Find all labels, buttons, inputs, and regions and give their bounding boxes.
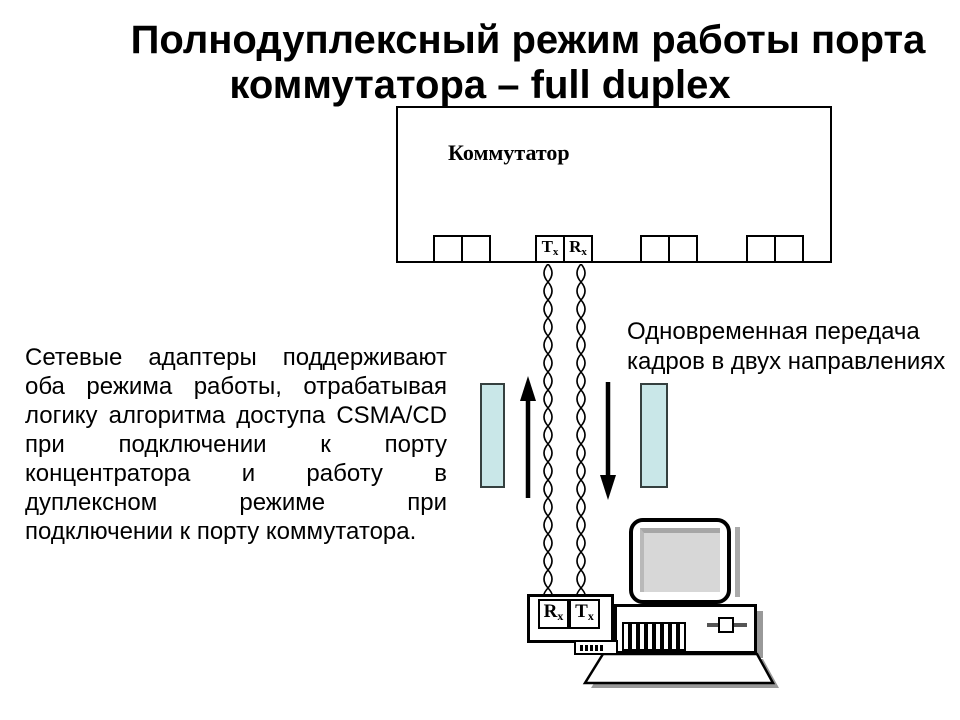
vent-slot xyxy=(662,622,670,651)
paragraph-line: Сетевые адаптеры поддерживают xyxy=(25,343,447,372)
monitor-screen xyxy=(640,528,720,592)
adapter-connector xyxy=(574,640,618,655)
slide-title: Полнодуплексный режим работы порта комму… xyxy=(95,18,905,108)
rx-adapter-label: Rx xyxy=(540,602,567,626)
paragraph-line: логику алгоритма доступа CSMA/CD xyxy=(25,401,447,430)
vent-slot xyxy=(638,622,646,651)
keyboard-icon xyxy=(578,650,788,694)
slide: Полнодуплексный режим работы порта комму… xyxy=(0,0,960,720)
paragraph-line: оба режима работы, отрабатывая xyxy=(25,372,447,401)
adapter-port-tx: Tx xyxy=(569,599,600,629)
monitor-icon xyxy=(629,518,731,604)
switch-box: Коммутатор Tx Rx xyxy=(396,106,832,263)
slide-title-line2: коммутатора – full duplex xyxy=(229,63,730,108)
keyboard-body xyxy=(585,654,773,683)
twisted-pair-cable-icon xyxy=(530,264,600,597)
caption-line: кадров в двух направлениях xyxy=(627,347,945,377)
switch-port-pair-4 xyxy=(746,235,804,263)
highlight-bar-left xyxy=(480,383,505,488)
switch-port xyxy=(746,235,776,263)
highlight-bar-right xyxy=(640,383,668,488)
system-unit-icon xyxy=(614,604,757,654)
switch-port-pair-tx-rx: Tx Rx xyxy=(535,235,593,263)
rx-port-label: Rx xyxy=(565,238,591,261)
vent-slot xyxy=(622,622,630,651)
network-adapter-box: Rx Tx xyxy=(527,594,614,643)
paragraph-line: концентратора и работу в xyxy=(25,459,447,488)
monitor-shadow xyxy=(735,527,740,597)
vent-slot xyxy=(654,622,662,651)
switch-port-rx: Rx xyxy=(563,235,593,263)
simultaneous-transfer-caption: Одновременная передача кадров в двух нап… xyxy=(627,317,945,377)
switch-port xyxy=(640,235,670,263)
switch-port xyxy=(461,235,491,263)
paragraph-line: подключении к порту коммутатора. xyxy=(25,517,447,546)
vent-slot xyxy=(678,622,686,651)
switch-port xyxy=(668,235,698,263)
adapter-description-paragraph: Сетевые адаптеры поддерживают оба режима… xyxy=(25,343,447,546)
switch-port-pair-3 xyxy=(640,235,698,263)
switch-port-pair-1 xyxy=(433,235,491,263)
floppy-button xyxy=(718,617,734,633)
switch-port xyxy=(433,235,463,263)
switch-port xyxy=(774,235,804,263)
slide-title-line1: Полнодуплексный режим работы порта xyxy=(131,18,926,63)
caption-line: Одновременная передача xyxy=(627,317,945,347)
paragraph-line: при подключении к порту xyxy=(25,430,447,459)
vent-slot xyxy=(630,622,638,651)
tx-adapter-label: Tx xyxy=(571,602,598,626)
adapter-port-rx: Rx xyxy=(538,599,569,629)
paragraph-line: дуплексном режиме при xyxy=(25,488,447,517)
switch-port-tx: Tx xyxy=(535,235,565,263)
tx-port-label: Tx xyxy=(537,238,563,261)
down-arrow-icon xyxy=(600,382,616,500)
vent-slot xyxy=(670,622,678,651)
switch-label: Коммутатор xyxy=(448,140,570,166)
vent-slot xyxy=(646,622,654,651)
